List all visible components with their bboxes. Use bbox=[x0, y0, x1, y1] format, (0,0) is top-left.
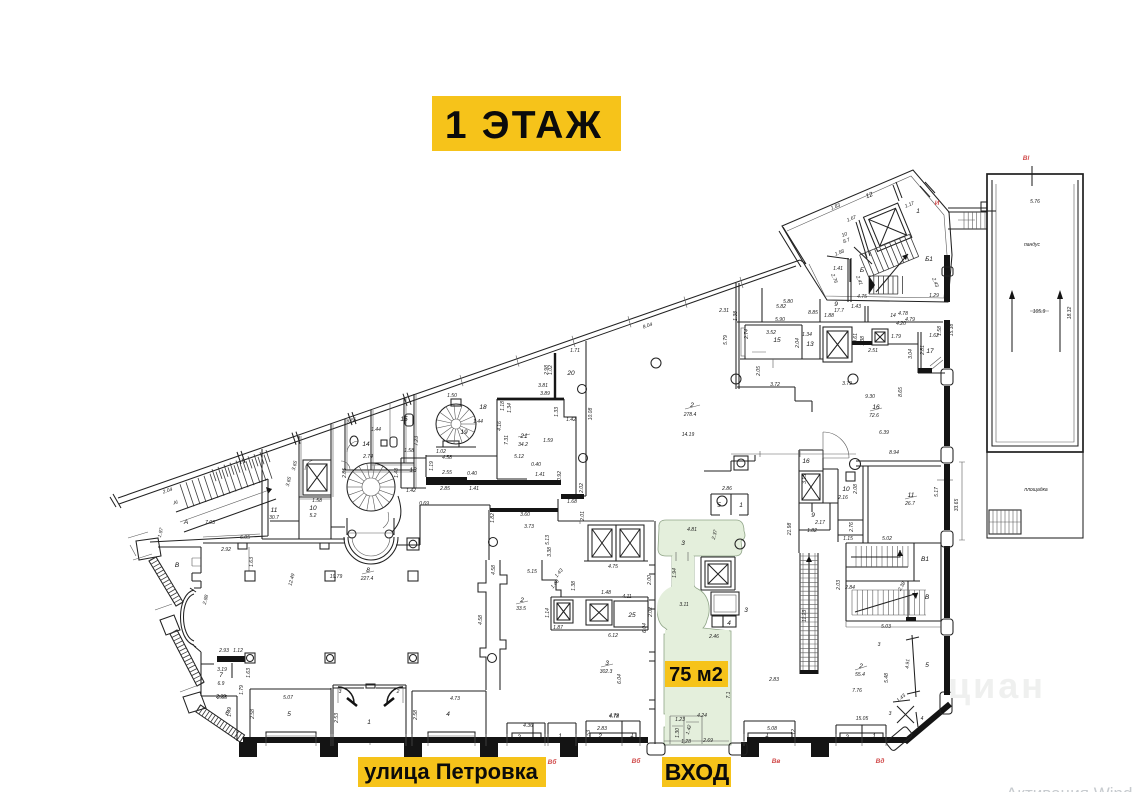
svg-text:1.43: 1.43 bbox=[851, 304, 861, 310]
svg-text:1.79: 1.79 bbox=[891, 334, 901, 340]
svg-text:1.12: 1.12 bbox=[233, 648, 243, 654]
svg-text:11.23: 11.23 bbox=[802, 610, 808, 622]
svg-text:2.51: 2.51 bbox=[867, 348, 878, 354]
svg-text:6.39: 6.39 bbox=[879, 430, 889, 436]
svg-text:302.3: 302.3 bbox=[600, 669, 613, 675]
svg-text:3.79: 3.79 bbox=[842, 381, 852, 387]
svg-text:3.81: 3.81 bbox=[538, 383, 548, 389]
svg-text:6.04: 6.04 bbox=[617, 674, 623, 684]
svg-text:циан: циан bbox=[948, 665, 1046, 706]
svg-text:7.1: 7.1 bbox=[726, 691, 732, 698]
svg-text:10: 10 bbox=[842, 486, 850, 493]
svg-text:2.58: 2.58 bbox=[413, 710, 419, 721]
svg-text:2.81: 2.81 bbox=[920, 345, 926, 356]
svg-text:1.30: 1.30 bbox=[675, 728, 681, 738]
svg-text:4.11: 4.11 bbox=[622, 594, 632, 600]
svg-text:2.00: 2.00 bbox=[647, 575, 653, 586]
svg-text:2.53: 2.53 bbox=[334, 713, 340, 724]
svg-text:4.91: 4.91 bbox=[905, 659, 912, 669]
svg-text:4.75: 4.75 bbox=[608, 564, 618, 570]
svg-text:2.83: 2.83 bbox=[596, 726, 607, 732]
svg-text:5.80: 5.80 bbox=[783, 299, 793, 305]
svg-text:4.36: 4.36 bbox=[523, 723, 533, 729]
svg-text:Вб: Вб bbox=[632, 757, 642, 765]
svg-text:И: И bbox=[935, 200, 940, 207]
svg-text:1.63: 1.63 bbox=[246, 668, 252, 678]
svg-text:5: 5 bbox=[717, 502, 721, 509]
svg-text:1.34: 1.34 bbox=[802, 332, 812, 338]
svg-text:2.74: 2.74 bbox=[362, 454, 373, 460]
svg-text:72.6: 72.6 bbox=[869, 413, 879, 419]
svg-text:6.9: 6.9 bbox=[218, 681, 225, 687]
svg-text:16: 16 bbox=[802, 458, 810, 465]
svg-text:4.24: 4.24 bbox=[697, 713, 707, 719]
svg-text:4: 4 bbox=[446, 711, 450, 718]
svg-text:5: 5 bbox=[287, 711, 291, 718]
svg-text:4.75: 4.75 bbox=[857, 294, 867, 300]
svg-text:6.12: 6.12 bbox=[608, 633, 618, 639]
svg-text:3.89: 3.89 bbox=[540, 391, 550, 397]
svg-text:0.40: 0.40 bbox=[467, 471, 477, 477]
svg-text:3.60: 3.60 bbox=[520, 512, 530, 518]
svg-text:5.08: 5.08 bbox=[767, 726, 777, 732]
svg-text:1.28: 1.28 bbox=[681, 739, 691, 745]
svg-text:17.7: 17.7 bbox=[834, 308, 844, 314]
svg-text:Б: Б bbox=[860, 267, 864, 274]
svg-text:8.65: 8.65 bbox=[898, 387, 904, 397]
svg-text:11: 11 bbox=[271, 507, 278, 514]
svg-text:1.34: 1.34 bbox=[507, 403, 513, 413]
svg-text:3: 3 bbox=[878, 642, 881, 648]
svg-text:1.14: 1.14 bbox=[545, 608, 551, 618]
svg-text:Активация Wind: Активация Wind bbox=[1006, 784, 1132, 792]
svg-text:5.79: 5.79 bbox=[723, 335, 729, 345]
svg-text:3.04: 3.04 bbox=[908, 349, 914, 359]
svg-text:1.50: 1.50 bbox=[447, 393, 457, 399]
svg-text:4.58: 4.58 bbox=[478, 615, 484, 625]
svg-text:2.01: 2.01 bbox=[580, 511, 586, 522]
svg-text:21.98: 21.98 bbox=[787, 523, 793, 537]
svg-text:1.79: 1.79 bbox=[239, 685, 245, 695]
svg-text:1.29: 1.29 bbox=[929, 293, 939, 299]
svg-text:5.48: 5.48 bbox=[884, 673, 890, 683]
svg-text:5.90: 5.90 bbox=[775, 317, 785, 323]
svg-text:1.42: 1.42 bbox=[406, 488, 416, 494]
svg-text:1.33: 1.33 bbox=[554, 407, 560, 417]
svg-text:10: 10 bbox=[309, 505, 317, 512]
svg-text:5.15: 5.15 bbox=[527, 569, 537, 575]
svg-text:2.16: 2.16 bbox=[837, 495, 848, 501]
svg-text:Вб: Вб bbox=[548, 758, 558, 766]
svg-text:ВХОД: ВХОД bbox=[665, 759, 729, 785]
svg-text:0.69: 0.69 bbox=[419, 501, 429, 507]
svg-text:1.58: 1.58 bbox=[312, 498, 322, 504]
svg-text:1.87: 1.87 bbox=[553, 625, 563, 631]
svg-text:4.58: 4.58 bbox=[491, 565, 497, 575]
svg-text:1.58: 1.58 bbox=[404, 448, 414, 454]
svg-text:3.52: 3.52 bbox=[766, 330, 776, 336]
svg-text:75 м2: 75 м2 bbox=[669, 664, 723, 686]
svg-text:25: 25 bbox=[627, 612, 636, 619]
svg-text:1.48: 1.48 bbox=[394, 468, 400, 478]
svg-text:278.4: 278.4 bbox=[683, 412, 697, 418]
svg-text:1.94: 1.94 bbox=[672, 568, 678, 578]
svg-text:0.40: 0.40 bbox=[531, 462, 541, 468]
svg-text:5.17: 5.17 bbox=[934, 487, 940, 497]
svg-text:Вl: Вl bbox=[1023, 155, 1030, 162]
svg-text:Вд: Вд bbox=[876, 757, 885, 765]
svg-text:15.38: 15.38 bbox=[949, 324, 955, 337]
svg-text:1.41: 1.41 bbox=[535, 472, 545, 478]
svg-text:2.93: 2.93 bbox=[218, 648, 229, 654]
svg-text:14: 14 bbox=[890, 313, 896, 319]
svg-text:1.41: 1.41 bbox=[833, 266, 843, 272]
svg-text:4: 4 bbox=[921, 716, 924, 722]
svg-text:1.42: 1.42 bbox=[566, 417, 576, 423]
svg-text:5.02: 5.02 bbox=[882, 536, 892, 542]
svg-text:3: 3 bbox=[744, 607, 748, 614]
svg-text:А: А bbox=[183, 519, 188, 526]
svg-text:1.63: 1.63 bbox=[249, 557, 255, 567]
svg-text:1.41: 1.41 bbox=[469, 486, 479, 492]
svg-text:2.05: 2.05 bbox=[756, 366, 762, 377]
svg-text:17: 17 bbox=[926, 348, 934, 355]
svg-text:8.85: 8.85 bbox=[808, 310, 818, 316]
svg-text:9: 9 bbox=[834, 301, 838, 308]
svg-text:3.73: 3.73 bbox=[524, 524, 534, 530]
svg-text:2.92: 2.92 bbox=[220, 547, 231, 553]
svg-text:5.03: 5.03 bbox=[881, 624, 891, 630]
svg-text:1.44: 1.44 bbox=[473, 419, 483, 425]
svg-text:2.76: 2.76 bbox=[849, 522, 855, 533]
svg-text:4.73: 4.73 bbox=[450, 696, 460, 702]
svg-text:33.65: 33.65 bbox=[954, 499, 960, 512]
svg-text:14.19: 14.19 bbox=[682, 432, 695, 438]
svg-text:4.81: 4.81 bbox=[687, 527, 697, 533]
svg-text:2.02: 2.02 bbox=[579, 483, 585, 494]
svg-text:2.86: 2.86 bbox=[721, 486, 732, 492]
svg-text:15.05: 15.05 bbox=[856, 716, 869, 722]
svg-text:1.82: 1.82 bbox=[807, 528, 817, 534]
svg-text:13: 13 bbox=[806, 341, 814, 348]
svg-text:улица Петровка: улица Петровка bbox=[364, 759, 539, 784]
svg-text:3.15: 3.15 bbox=[802, 474, 808, 484]
svg-text:1.68: 1.68 bbox=[567, 499, 577, 505]
svg-text:1.71: 1.71 bbox=[570, 348, 580, 354]
svg-text:1.58: 1.58 bbox=[937, 326, 943, 336]
svg-text:15: 15 bbox=[773, 337, 781, 344]
svg-text:6.05: 6.05 bbox=[240, 535, 250, 541]
svg-text:55.4: 55.4 bbox=[855, 672, 865, 678]
svg-text:2.46: 2.46 bbox=[708, 634, 719, 640]
svg-text:1.49: 1.49 bbox=[227, 707, 233, 717]
svg-text:1.19: 1.19 bbox=[429, 461, 435, 471]
svg-text:2.83: 2.83 bbox=[768, 677, 779, 683]
svg-text:105.9: 105.9 bbox=[1033, 309, 1046, 315]
svg-text:2.17: 2.17 bbox=[814, 520, 825, 526]
svg-text:15: 15 bbox=[400, 416, 408, 423]
svg-text:площадка: площадка bbox=[1024, 487, 1048, 493]
svg-text:5.13: 5.13 bbox=[545, 535, 551, 545]
svg-text:2.55: 2.55 bbox=[441, 470, 452, 476]
svg-text:1.88: 1.88 bbox=[824, 313, 834, 319]
svg-text:2: 2 bbox=[396, 689, 400, 695]
svg-text:5.12: 5.12 bbox=[514, 454, 524, 460]
svg-text:1.38: 1.38 bbox=[860, 336, 866, 346]
svg-text:1 ЭТАЖ: 1 ЭТАЖ bbox=[445, 104, 603, 147]
svg-text:2.08: 2.08 bbox=[853, 484, 859, 495]
svg-text:1: 1 bbox=[916, 208, 920, 215]
svg-text:2.04: 2.04 bbox=[795, 338, 801, 349]
svg-text:В: В bbox=[175, 562, 180, 569]
svg-text:2.84: 2.84 bbox=[844, 585, 855, 591]
svg-text:1: 1 bbox=[367, 719, 371, 726]
svg-text:0.92: 0.92 bbox=[557, 471, 563, 481]
svg-text:1.15: 1.15 bbox=[843, 536, 853, 542]
svg-text:19: 19 bbox=[460, 429, 468, 436]
svg-text:18.32: 18.32 bbox=[1067, 307, 1073, 320]
svg-text:1.18: 1.18 bbox=[500, 401, 506, 411]
svg-text:3.19: 3.19 bbox=[217, 667, 227, 673]
svg-text:7.23: 7.23 bbox=[414, 436, 420, 446]
svg-text:1.38: 1.38 bbox=[571, 581, 577, 591]
svg-text:1: 1 bbox=[739, 502, 743, 509]
svg-text:34.2: 34.2 bbox=[518, 442, 528, 448]
svg-text:3.72: 3.72 bbox=[770, 382, 780, 388]
svg-text:9.30: 9.30 bbox=[865, 394, 875, 400]
svg-text:18: 18 bbox=[479, 404, 487, 411]
svg-text:3.11: 3.11 bbox=[679, 602, 689, 608]
svg-text:30.7: 30.7 bbox=[269, 515, 279, 521]
svg-text:2.85: 2.85 bbox=[439, 486, 450, 492]
svg-text:7.76: 7.76 bbox=[852, 688, 862, 694]
svg-text:33.5: 33.5 bbox=[516, 606, 526, 612]
svg-text:5.2: 5.2 bbox=[310, 513, 317, 519]
svg-text:9: 9 bbox=[811, 512, 815, 519]
svg-text:2.65: 2.65 bbox=[216, 695, 227, 701]
svg-text:1.23: 1.23 bbox=[675, 717, 685, 723]
svg-text:6.04: 6.04 bbox=[642, 623, 648, 633]
svg-text:В1: В1 bbox=[921, 556, 929, 563]
svg-text:7.03: 7.03 bbox=[205, 520, 215, 526]
svg-text:227.4: 227.4 bbox=[360, 576, 374, 582]
svg-text:10.08: 10.08 bbox=[588, 408, 594, 421]
svg-text:20: 20 bbox=[566, 370, 575, 377]
svg-text:0.61: 0.61 bbox=[853, 333, 859, 343]
svg-text:пандус: пандус bbox=[1024, 242, 1040, 248]
svg-text:1.82: 1.82 bbox=[490, 513, 496, 523]
svg-text:Б1: Б1 bbox=[925, 256, 933, 263]
svg-text:4.78: 4.78 bbox=[609, 714, 619, 720]
svg-text:4: 4 bbox=[727, 620, 731, 627]
svg-text:5.07: 5.07 bbox=[283, 695, 293, 701]
svg-text:3: 3 bbox=[339, 689, 342, 695]
svg-text:Вв: Вв bbox=[772, 758, 781, 765]
svg-text:4.16: 4.16 bbox=[497, 421, 503, 431]
svg-text:2.74: 2.74 bbox=[744, 329, 750, 340]
svg-text:В: В bbox=[925, 594, 930, 601]
svg-text:7: 7 bbox=[219, 672, 223, 679]
svg-text:3: 3 bbox=[681, 540, 685, 547]
svg-text:19.79: 19.79 bbox=[330, 574, 343, 580]
svg-text:1.48: 1.48 bbox=[601, 590, 611, 596]
svg-text:2.03: 2.03 bbox=[836, 580, 842, 591]
svg-text:2.85: 2.85 bbox=[342, 468, 348, 479]
svg-text:1.02: 1.02 bbox=[548, 365, 554, 375]
svg-text:13: 13 bbox=[409, 467, 417, 474]
svg-text:4.79: 4.79 bbox=[905, 317, 915, 323]
svg-text:14: 14 bbox=[362, 441, 370, 448]
svg-text:2.31: 2.31 bbox=[718, 308, 729, 314]
svg-text:3.38: 3.38 bbox=[547, 547, 553, 557]
svg-text:7.31: 7.31 bbox=[504, 435, 510, 445]
svg-text:1.44: 1.44 bbox=[371, 427, 381, 433]
svg-text:2.58: 2.58 bbox=[250, 709, 256, 720]
svg-text:1.38: 1.38 bbox=[733, 311, 739, 321]
svg-text:5: 5 bbox=[925, 662, 929, 669]
svg-text:26.7: 26.7 bbox=[904, 501, 915, 507]
svg-text:8.94: 8.94 bbox=[889, 450, 899, 456]
svg-text:5.76: 5.76 bbox=[1030, 199, 1040, 205]
svg-text:3: 3 bbox=[889, 711, 892, 717]
svg-text:1.59: 1.59 bbox=[543, 438, 553, 444]
